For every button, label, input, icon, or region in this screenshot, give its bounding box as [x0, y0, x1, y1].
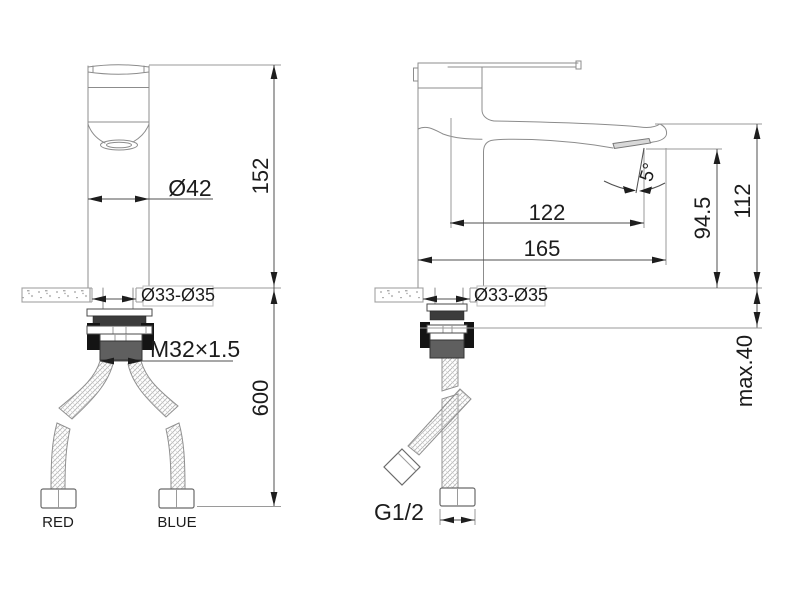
front-thread-text: M32×1.5: [150, 336, 240, 362]
side-hole-arrow-left: [423, 296, 437, 303]
side-view: Ø33-Ø35: [374, 61, 762, 525]
front-faucet-body: [88, 65, 149, 309]
side-bracket-bar: [427, 325, 467, 333]
front-hose-length-arrow-bottom: [271, 492, 278, 506]
front-spout-recess-left: [88, 124, 105, 143]
front-bracket-bar: [87, 326, 152, 334]
front-view: Ø33-Ø35 RED BLUE: [22, 65, 281, 531]
side-countertop: Ø33-Ø35: [375, 285, 762, 306]
side-connection-arrow-left: [441, 517, 454, 523]
side-max-deck-arrow-top: [754, 290, 761, 304]
front-diameter-text: Ø42: [168, 175, 211, 201]
front-body-top-edge: [88, 65, 149, 67]
front-diameter-arrow-right: [135, 196, 149, 203]
front-hose-length-text: 600: [248, 380, 273, 417]
side-nut-top: [430, 333, 464, 340]
side-hose-angled: [408, 389, 471, 455]
side-max-deck-arrow-bottom: [754, 312, 761, 326]
side-reach-text: 122: [529, 200, 566, 225]
side-hose-upper-segment: [442, 358, 458, 391]
side-mounting-hardware: [420, 304, 474, 358]
side-spout-height-arrow-top: [714, 150, 721, 164]
front-spout-recess-right: [133, 124, 149, 142]
side-connection-ext-lines: [440, 509, 475, 525]
side-lever-end-tip: [576, 61, 581, 69]
front-hose-upper-right: [128, 361, 178, 417]
side-angled-hose-nut: [384, 449, 420, 485]
side-hole-label: Ø33-Ø35: [474, 285, 548, 305]
front-height-arrow-bottom: [271, 272, 278, 286]
front-hole-label: Ø33-Ø35: [141, 285, 215, 305]
side-reach-arrow-left: [450, 220, 464, 227]
front-seal-ring: [93, 316, 146, 326]
front-hole-arrow-right: [122, 296, 136, 303]
faucet-technical-drawing: Ø33-Ø35 RED BLUE: [0, 0, 800, 600]
side-connection-arrow-right: [461, 517, 474, 523]
front-countertop-section: [22, 288, 90, 302]
front-mounting-nut: [100, 341, 142, 360]
side-depth-arrow-right: [652, 257, 666, 264]
side-back-tab: [414, 68, 419, 81]
front-hose-lower-right: [166, 423, 185, 489]
front-hot-hose-label: RED: [42, 514, 74, 531]
front-hose-upper-left: [59, 361, 113, 419]
side-angle-arrow-left: [623, 186, 636, 194]
front-hose-lower-left: [51, 423, 70, 489]
side-shoulder-line: [418, 127, 482, 139]
side-dimensions: 122 165 5° 94.5 112 max.4: [374, 118, 762, 525]
side-washer: [427, 304, 467, 311]
side-seal-ring: [430, 311, 464, 320]
front-nut-top: [100, 334, 142, 341]
front-hole-arrow-left: [92, 296, 106, 303]
side-spout-height-arrow-bottom: [714, 272, 721, 286]
side-depth-text: 165: [524, 236, 561, 261]
side-spout-height-text: 94.5: [690, 197, 715, 240]
side-depth-arrow-left: [418, 257, 432, 264]
front-cap-underline: [88, 72, 149, 74]
front-cold-hose-label: BLUE: [157, 514, 196, 531]
side-countertop-section: [375, 288, 423, 302]
front-hose-length-arrow-top: [271, 290, 278, 304]
side-max-deck-text: max.40: [732, 335, 757, 407]
side-height-arrow-bottom: [754, 272, 761, 286]
front-cap-lip-ticks: [93, 66, 144, 72]
side-angle-text: 5°: [636, 161, 661, 185]
side-reach-arrow-right: [630, 220, 644, 227]
front-mounting-hardware: [87, 309, 154, 360]
front-aerator-inner: [107, 142, 132, 148]
front-washer: [87, 309, 152, 316]
front-diameter-arrow-left: [88, 196, 102, 203]
side-height-arrow-top: [754, 125, 761, 139]
side-mounting-nut: [430, 340, 464, 358]
front-height-arrow-top: [271, 65, 278, 79]
front-countertop: Ø33-Ø35: [22, 285, 281, 306]
side-connection-text: G1/2: [374, 499, 424, 525]
side-hoses: [384, 358, 475, 506]
side-aerator: [613, 139, 651, 149]
side-handle-column: [482, 67, 494, 121]
side-angle-arrow-right: [639, 187, 652, 195]
front-height-text: 152: [248, 158, 273, 195]
side-height-text: 112: [730, 183, 755, 218]
technical-drawing-page: Ø33-Ø35 RED BLUE: [0, 0, 800, 600]
front-hoses: RED BLUE: [41, 361, 197, 531]
